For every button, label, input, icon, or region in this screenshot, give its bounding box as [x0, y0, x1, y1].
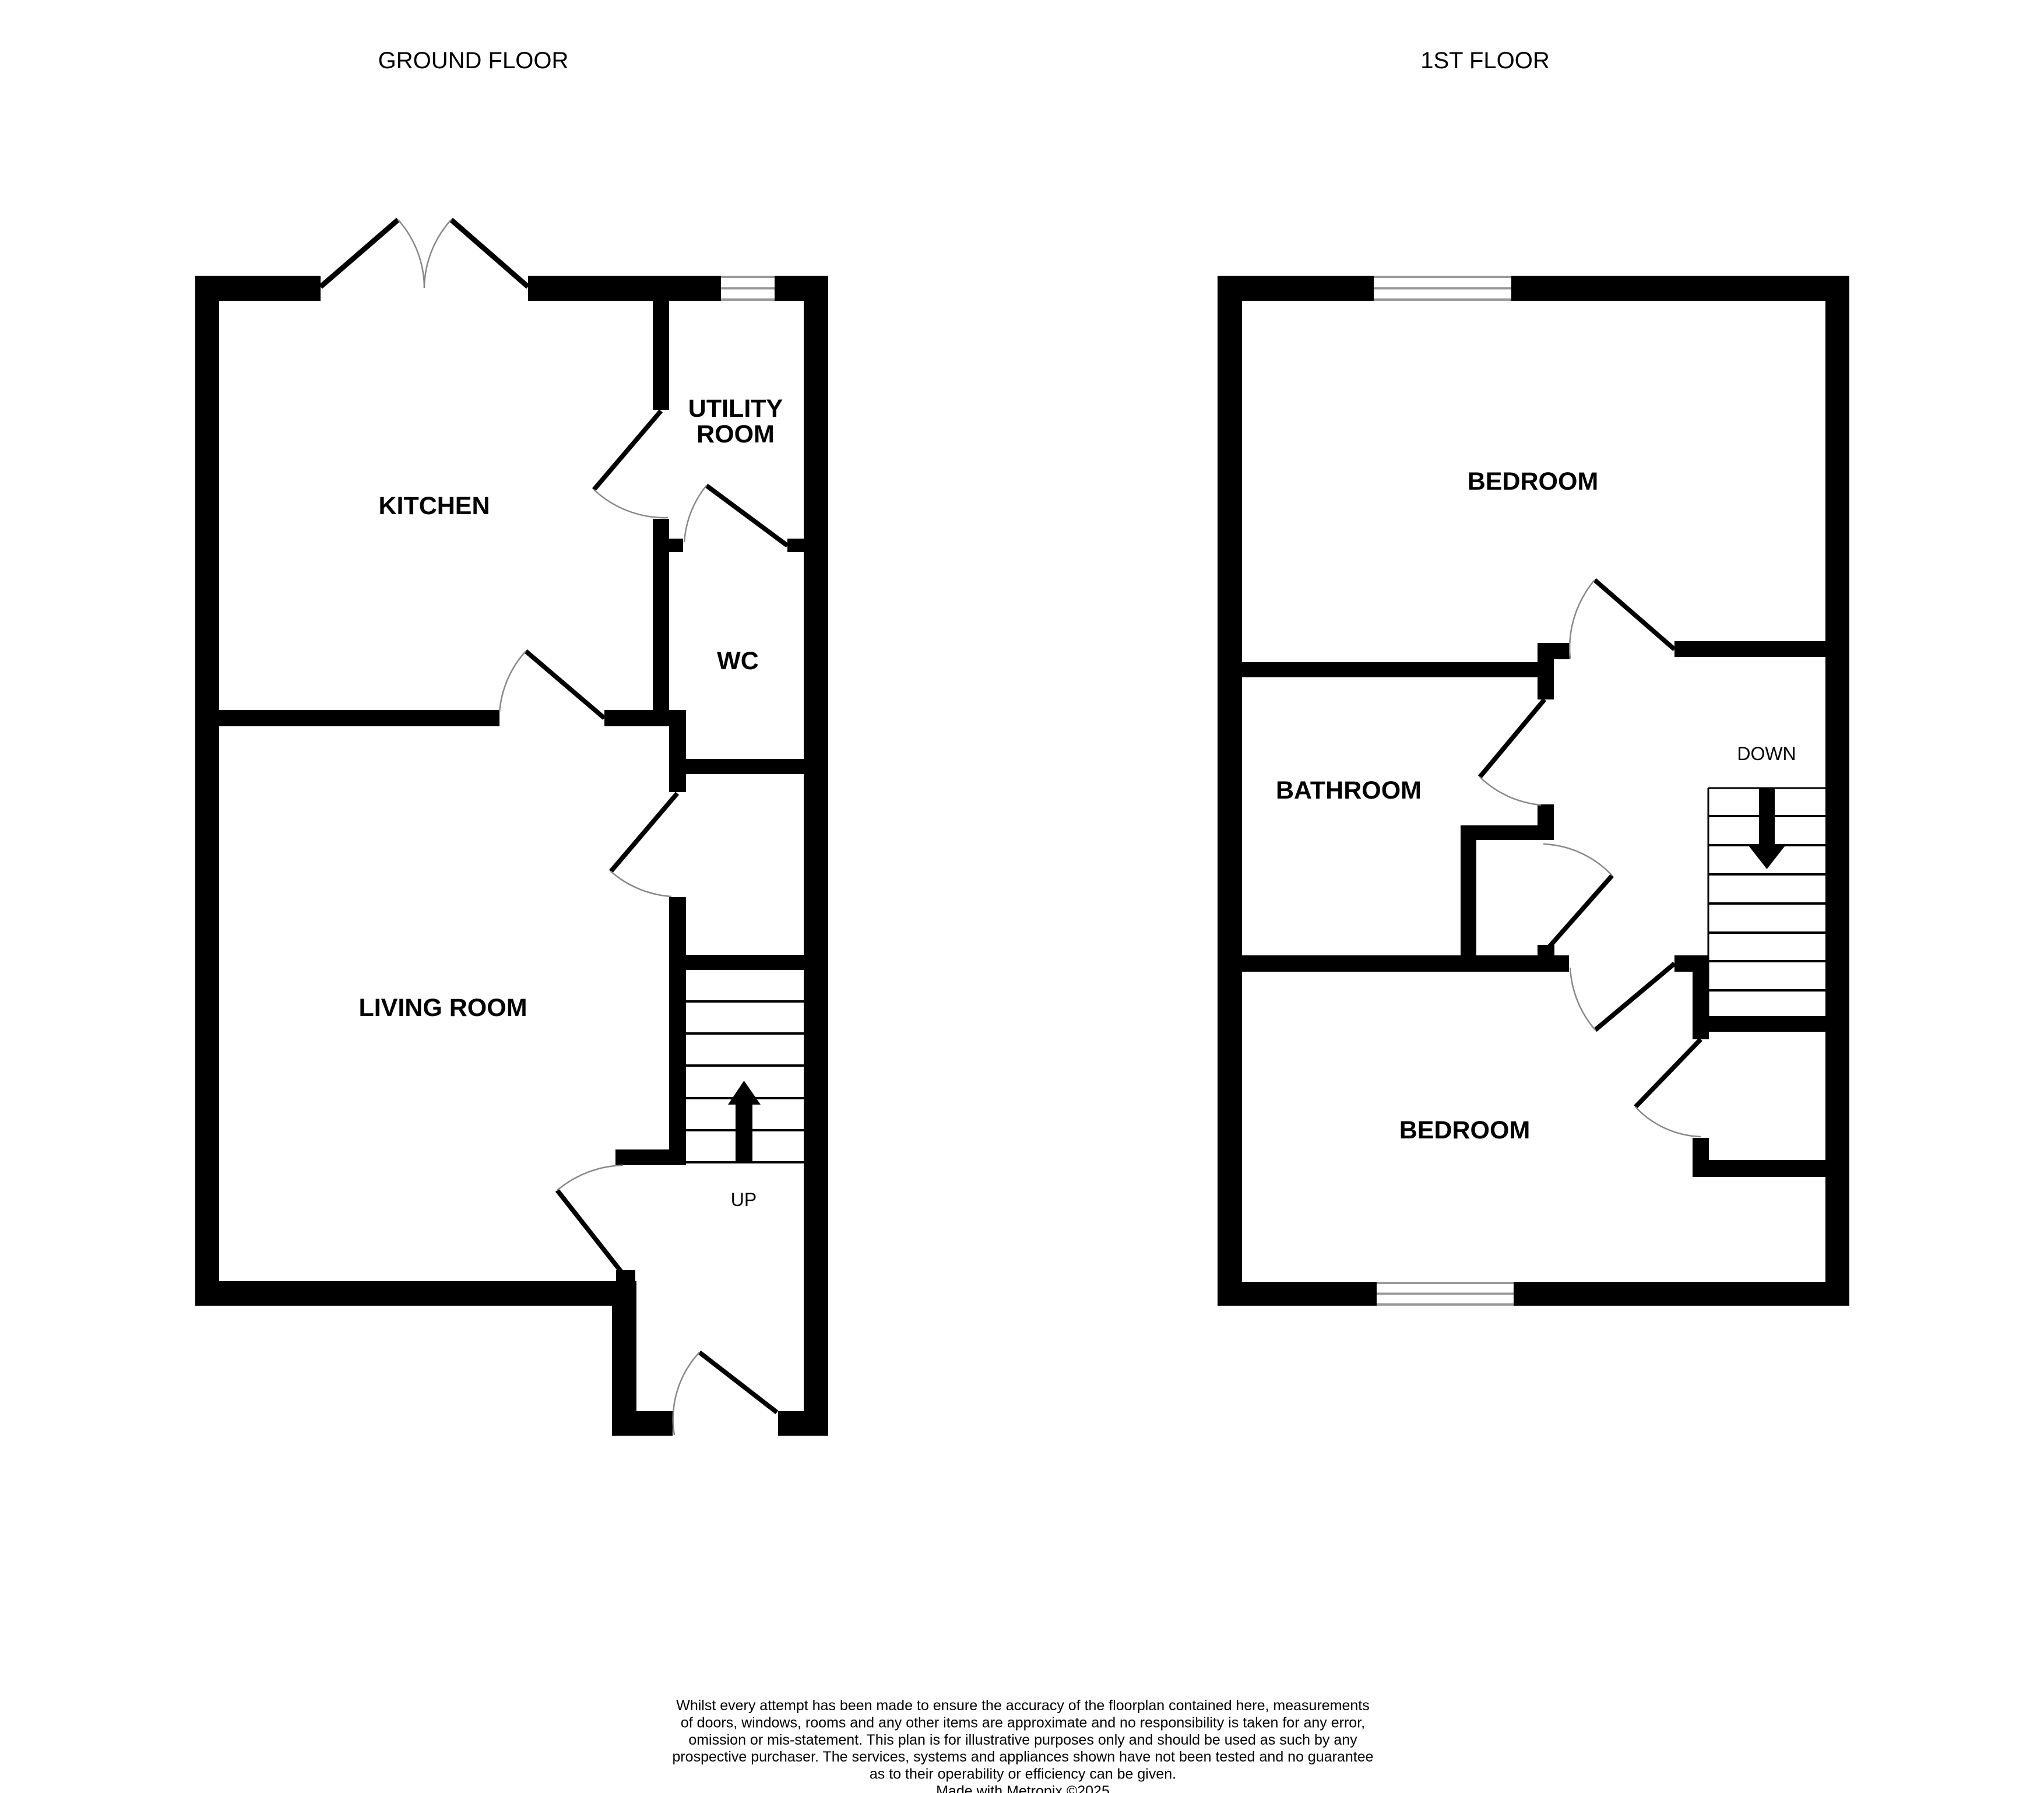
svg-text:prospective purchaser. The ser: prospective purchaser. The services, sys… [672, 1749, 1373, 1765]
svg-text:GROUND FLOOR: GROUND FLOOR [378, 48, 569, 73]
svg-text:1ST FLOOR: 1ST FLOOR [1420, 48, 1550, 73]
svg-text:as to their operability or eff: as to their operability or efficiency ca… [870, 1766, 1176, 1783]
svg-text:LIVING ROOM: LIVING ROOM [358, 994, 527, 1022]
svg-text:Made with Metropix ©2025: Made with Metropix ©2025 [936, 1783, 1110, 1793]
svg-text:omission or mis-statement. Thi: omission or mis-statement. This plan is … [688, 1732, 1357, 1748]
svg-text:ROOM: ROOM [696, 420, 775, 448]
svg-text:UTILITY: UTILITY [688, 395, 783, 423]
svg-text:of doors, windows, rooms and a: of doors, windows, rooms and any other i… [681, 1714, 1365, 1731]
svg-text:BEDROOM: BEDROOM [1399, 1116, 1531, 1144]
svg-text:BEDROOM: BEDROOM [1468, 467, 1599, 495]
svg-text:UP: UP [731, 1189, 757, 1210]
svg-text:WC: WC [717, 647, 759, 675]
svg-text:BATHROOM: BATHROOM [1276, 776, 1422, 804]
svg-text:Whilst every attempt has been: Whilst every attempt has been made to en… [676, 1697, 1370, 1714]
svg-text:DOWN: DOWN [1737, 743, 1796, 764]
svg-text:KITCHEN: KITCHEN [378, 492, 490, 520]
